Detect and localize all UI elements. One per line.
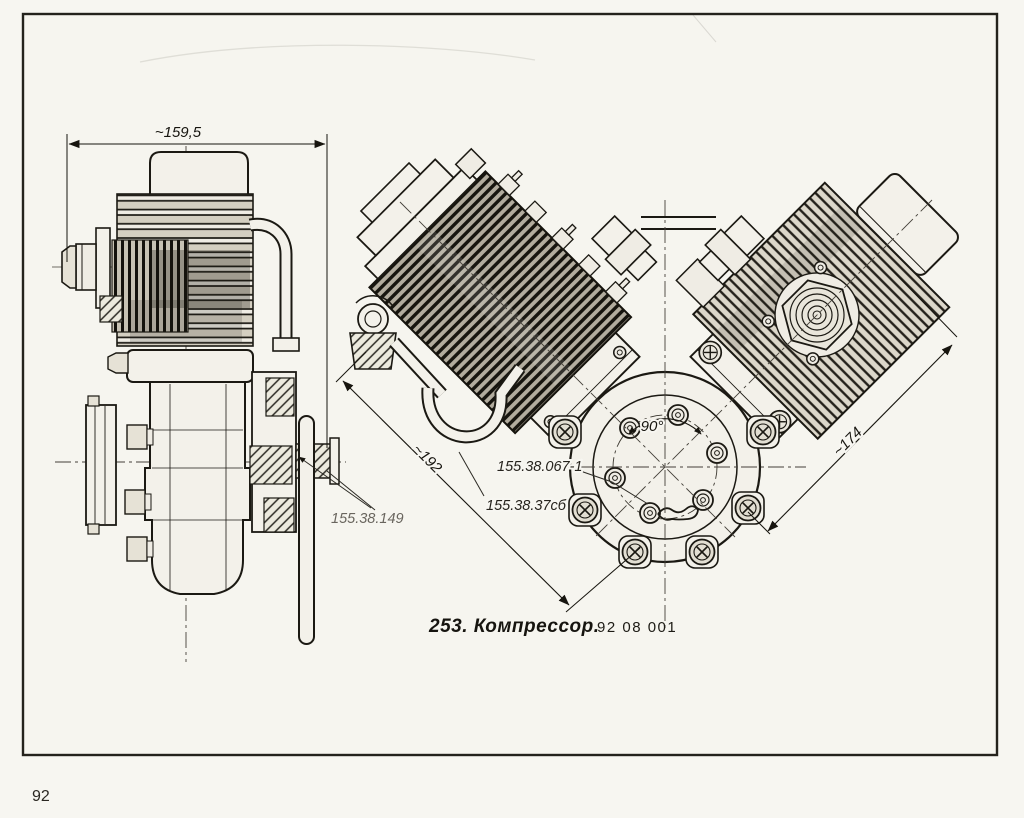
mount-lug-bolt bbox=[732, 492, 764, 524]
part-number-text: 155.38.149 bbox=[331, 511, 404, 527]
cover-bolt bbox=[605, 468, 625, 488]
mount-lug-bolt bbox=[686, 536, 718, 568]
crank-handle bbox=[299, 416, 314, 644]
crankcase-body bbox=[145, 382, 250, 594]
mount-lug-bolt bbox=[569, 494, 601, 526]
mount-lug-bolt bbox=[747, 416, 779, 448]
angle-text: 90° bbox=[641, 418, 664, 435]
valve-cover-plate bbox=[86, 396, 116, 534]
caption-code: 92 08 001 bbox=[597, 619, 677, 636]
ink-smudge bbox=[130, 300, 242, 342]
crankcase-top-cover bbox=[127, 350, 253, 382]
page-number: 92 bbox=[32, 788, 50, 805]
tube-flange bbox=[273, 338, 299, 351]
scanned-manual-page: ~159,5 155.38.149 bbox=[0, 0, 1024, 818]
valve-cap bbox=[358, 304, 388, 334]
hex-plug bbox=[62, 246, 76, 288]
cover-bolt bbox=[668, 405, 688, 425]
elbow-section bbox=[100, 296, 122, 322]
caption-title: 253. Компрессор. bbox=[428, 616, 600, 637]
cover-bolt bbox=[108, 353, 128, 373]
part-number-text: 155.38.37сб bbox=[486, 498, 567, 514]
cover-bolt bbox=[620, 418, 640, 438]
valve-body-section bbox=[350, 333, 396, 369]
cylinder-head-cap bbox=[150, 152, 248, 196]
mount-lug-bolt bbox=[549, 416, 581, 448]
part-number-text: 155.38.067-1 bbox=[497, 459, 582, 475]
dim-width-text: ~159,5 bbox=[155, 124, 202, 141]
cover-bolt bbox=[640, 503, 660, 523]
cover-bolt bbox=[707, 443, 727, 463]
ink-smudge bbox=[150, 250, 250, 308]
technical-drawing: ~159,5 155.38.149 bbox=[0, 0, 1024, 818]
figure-caption: 253. Компрессор. 92 08 001 bbox=[428, 616, 677, 637]
